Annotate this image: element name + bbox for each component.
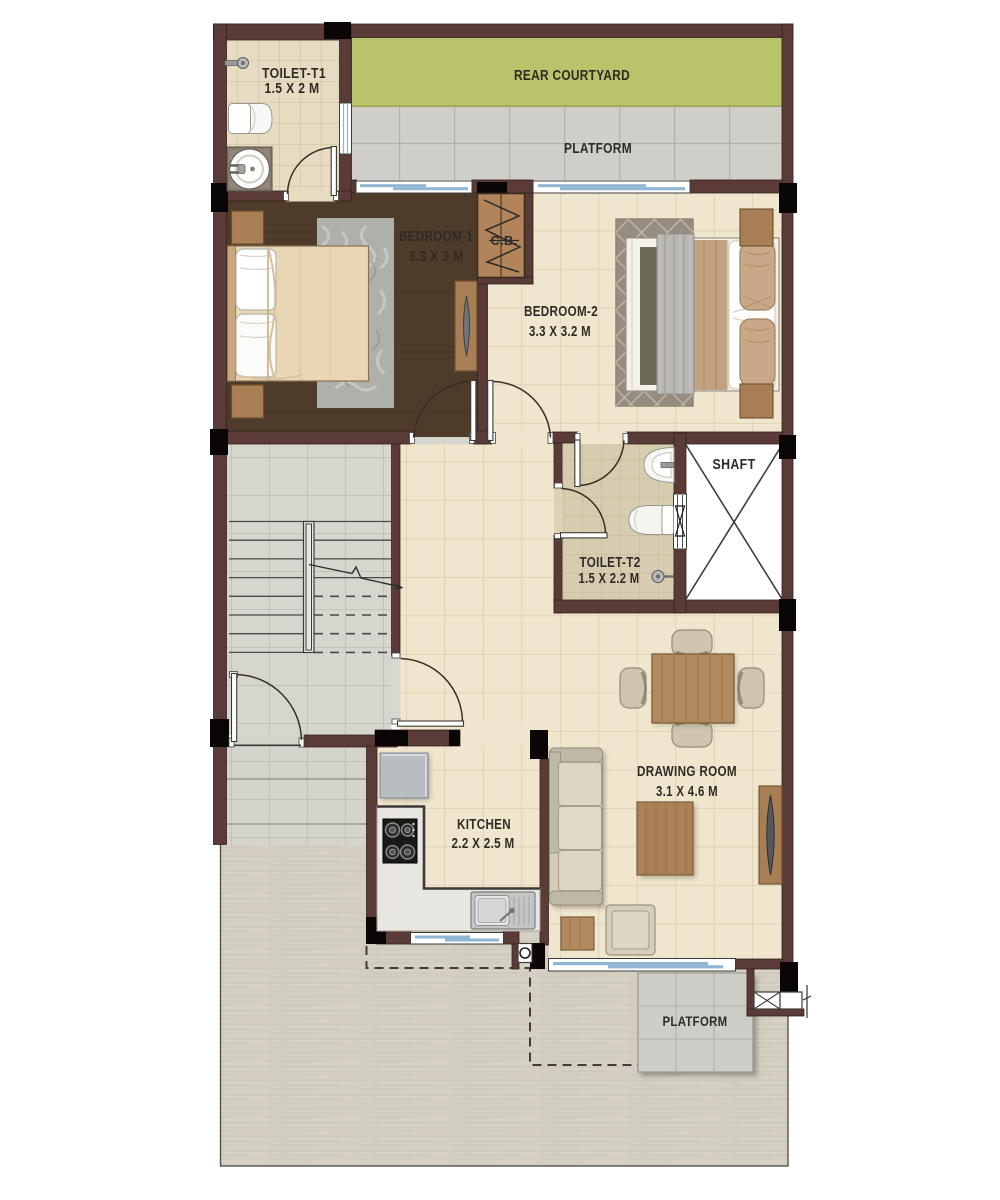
svg-text:2.2 X 2.5 M: 2.2 X 2.5 M [452,836,515,852]
svg-text:1.5 X 2 M: 1.5 X 2 M [265,81,320,97]
svg-text:BEDROOM-2: BEDROOM-2 [524,304,598,320]
svg-text:TOILET-T2: TOILET-T2 [580,555,641,571]
svg-text:REAR COURTYARD: REAR COURTYARD [514,68,630,84]
svg-text:1.5 X 2.2 M: 1.5 X 2.2 M [579,571,640,587]
svg-text:PLATFORM: PLATFORM [663,1013,728,1029]
svg-text:C.B.: C.B. [491,233,518,248]
svg-text:DRAWING ROOM: DRAWING ROOM [637,764,737,780]
svg-text:SHAFT: SHAFT [713,457,756,473]
svg-text:3.3 X 3.2 M: 3.3 X 3.2 M [529,324,591,340]
svg-text:TOILET-T1: TOILET-T1 [262,66,326,82]
svg-text:KITCHEN: KITCHEN [457,817,511,833]
svg-text:BEDROOM-1: BEDROOM-1 [399,229,473,245]
svg-text:3.3 X 3 M: 3.3 X 3 M [409,249,464,265]
svg-text:3.1 X 4.6 M: 3.1 X 4.6 M [656,784,718,800]
svg-text:PLATFORM: PLATFORM [564,141,632,157]
